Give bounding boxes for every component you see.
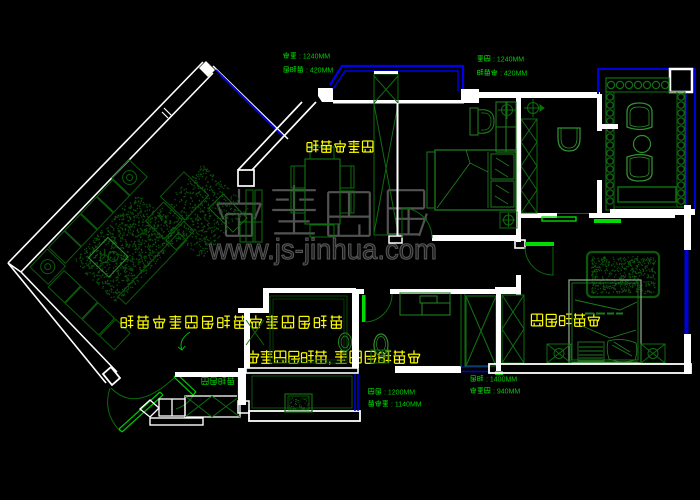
svg-text:: 420MM: : 420MM (306, 68, 333, 75)
svg-text:: 1140MM: : 1140MM (391, 402, 422, 409)
svg-text:: 420MM: : 420MM (500, 71, 527, 78)
svg-text:: 1240MM: : 1240MM (493, 57, 524, 64)
svg-text:: 1240MM: : 1240MM (299, 54, 330, 61)
svg-text:: 1200MM: : 1200MM (384, 390, 415, 397)
svg-text:: 940MM: : 940MM (493, 389, 520, 396)
svg-text:: 1400MM: : 1400MM (486, 377, 517, 384)
svg-text:,: , (328, 351, 332, 366)
